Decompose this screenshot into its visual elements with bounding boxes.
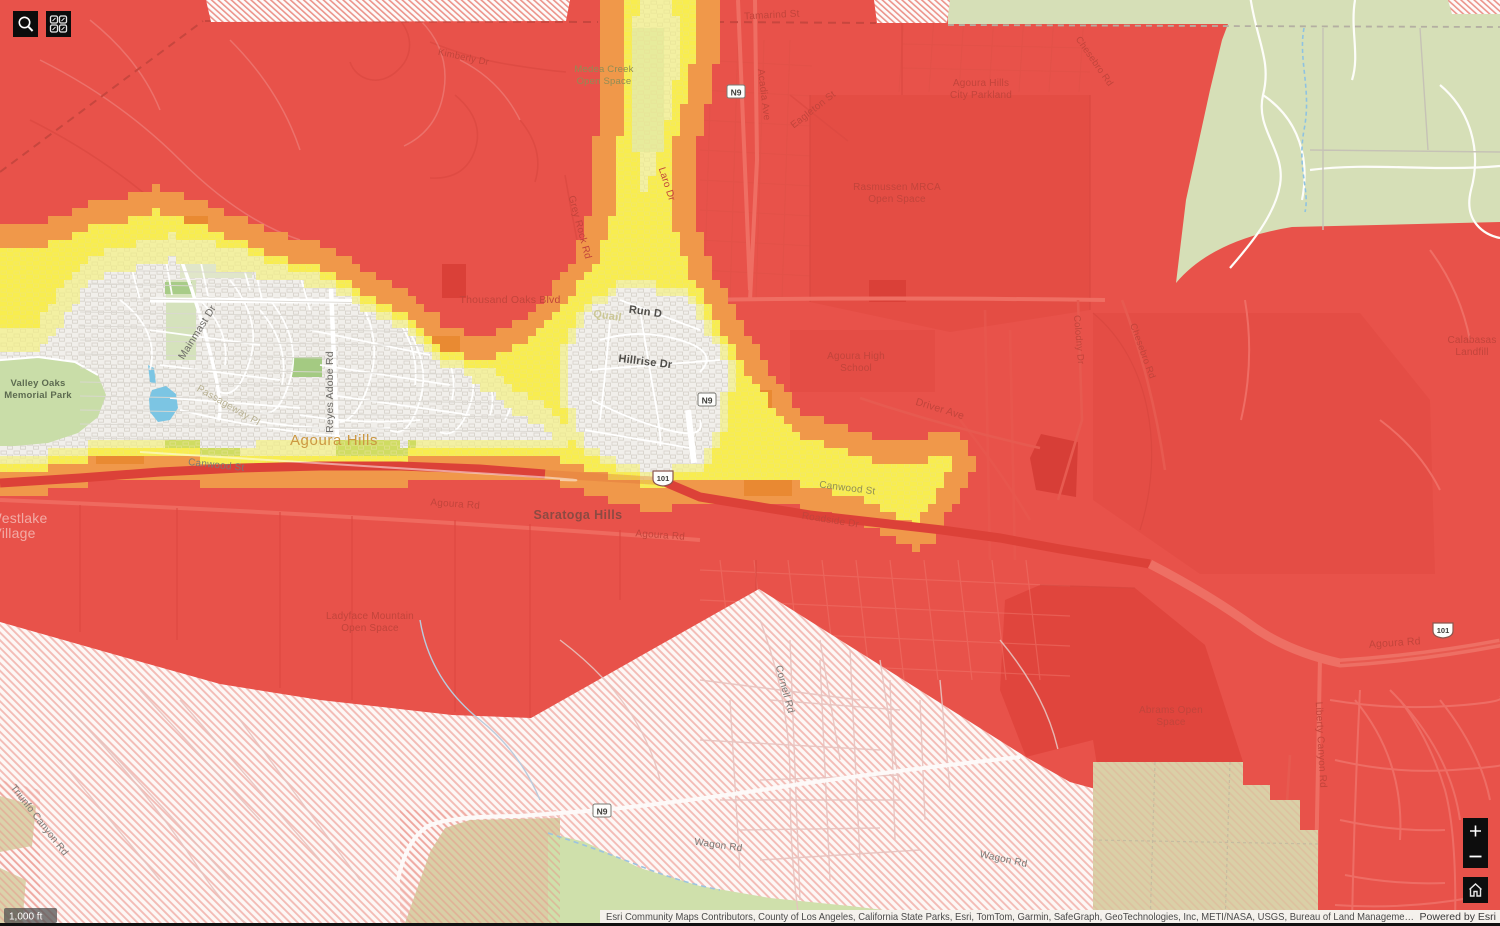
svg-text:Thousand Oaks Blvd: Thousand Oaks Blvd: [459, 294, 560, 306]
svg-text:Valley Oaks: Valley Oaks: [10, 378, 65, 389]
svg-text:N9: N9: [702, 396, 713, 406]
svg-text:Saratoga Hills: Saratoga Hills: [534, 508, 623, 522]
svg-text:Landfill: Landfill: [1455, 347, 1488, 358]
svg-text:Esri Community Maps Contributo: Esri Community Maps Contributors, County…: [606, 911, 1414, 923]
svg-text:Open Space: Open Space: [868, 194, 926, 205]
svg-text:Powered by Esri: Powered by Esri: [1420, 911, 1496, 923]
svg-text:Open Space: Open Space: [577, 76, 632, 87]
svg-text:Westlake: Westlake: [0, 510, 47, 526]
svg-text:Rasmussen MRCA: Rasmussen MRCA: [853, 182, 941, 193]
svg-text:101: 101: [1437, 626, 1450, 635]
svg-text:N9: N9: [731, 88, 742, 98]
svg-text:Open Space: Open Space: [341, 623, 399, 634]
svg-text:School: School: [840, 363, 872, 374]
svg-text:101: 101: [657, 474, 670, 483]
svg-text:Memorial Park: Memorial Park: [4, 390, 72, 401]
svg-text:City Parkland: City Parkland: [950, 90, 1012, 101]
svg-text:Agoura High: Agoura High: [827, 351, 885, 362]
svg-text:N9: N9: [597, 807, 608, 817]
svg-text:Calabasas: Calabasas: [1447, 335, 1496, 346]
svg-text:Ladyface Mountain: Ladyface Mountain: [326, 611, 414, 622]
svg-text:Reyes Adobe Rd: Reyes Adobe Rd: [324, 351, 336, 433]
svg-text:1,000 ft: 1,000 ft: [9, 912, 43, 923]
svg-text:Agoura Hills: Agoura Hills: [953, 78, 1009, 89]
svg-text:Medea Creek: Medea Creek: [574, 64, 633, 75]
svg-text:Abrams Open: Abrams Open: [1139, 705, 1203, 716]
svg-text:Agoura Hills: Agoura Hills: [290, 432, 378, 449]
svg-text:Space: Space: [1156, 717, 1186, 728]
svg-text:Village: Village: [0, 525, 36, 541]
